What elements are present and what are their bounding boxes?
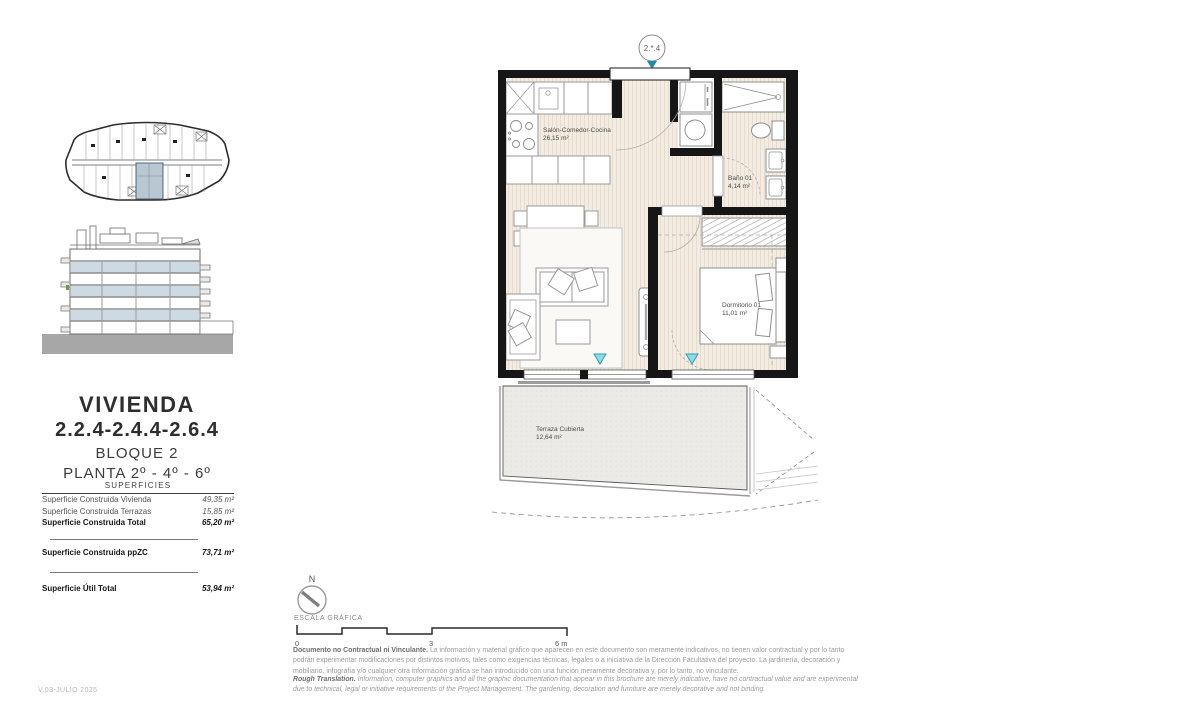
row-value: 15,85 m²: [202, 507, 234, 518]
floor-plan: 2.*.4: [480, 25, 830, 545]
disclaimer-en-body: Information, computer graphics and all t…: [293, 676, 858, 693]
svg-text:2.*.4: 2.*.4: [644, 44, 661, 53]
elevation-green-mark: [66, 285, 69, 290]
disclaimer-en: Rough Translation. Information, computer…: [293, 675, 861, 696]
unit-numbers: 2.2.4-2.4.4-2.6.4: [30, 419, 244, 442]
title-block: VIVIENDA 2.2.4-2.4.4-2.6.4 BLOQUE 2 PLAN…: [30, 392, 244, 482]
table-row: Superficie Construida Terrazas 15,85 m²: [42, 507, 234, 518]
headboard: [776, 272, 786, 342]
table-row-util: Superficie Útil Total 53,94 m²: [42, 584, 234, 595]
row-value: 49,35 m²: [202, 495, 234, 506]
terrace: [500, 386, 754, 496]
entry-door: [610, 68, 690, 80]
coffee-table: [556, 320, 590, 344]
superficies-header: SUPERFICIES: [42, 481, 234, 490]
living-furniture: [506, 228, 622, 368]
floors-label: PLANTA 2º - 4º - 6º: [30, 465, 244, 482]
row-value: 53,94 m²: [202, 584, 234, 595]
windows: [518, 370, 754, 383]
building-elevation: [40, 221, 236, 363]
row-value: 65,20 m²: [202, 518, 234, 529]
disclaimer-es-lead: Documento no Contractual ni Vinculante.: [293, 647, 428, 654]
divider: [42, 493, 234, 494]
superficies-table: SUPERFICIES Superficie Construida Vivien…: [42, 481, 234, 595]
elevation-highlight-bands: [71, 262, 199, 321]
building-key-plan: [58, 110, 234, 216]
disclaimer-es: Documento no Contractual ni Vinculante. …: [293, 646, 861, 677]
elevation-roof: [70, 226, 200, 249]
north-label: N: [309, 574, 316, 584]
bathroom-door: [713, 156, 723, 196]
north-arrow: N: [288, 572, 340, 618]
row-value: 73,71 m²: [202, 548, 234, 559]
row-label: Superficie Construida Total: [42, 518, 146, 529]
shower: [722, 82, 784, 112]
highlighted-unit: [136, 163, 163, 199]
nightstand: [776, 258, 787, 272]
bedroom-door: [662, 206, 702, 216]
elevation-ground: [42, 334, 233, 354]
table-row-ppzc: Superficie Construida ppZC 73,71 m²: [42, 548, 234, 559]
unit-badge: 2.*.4: [639, 35, 665, 69]
table-row-total: Superficie Construida Total 65,20 m²: [42, 518, 234, 529]
page-title: VIVIENDA: [30, 392, 244, 418]
block-label: BLOQUE 2: [30, 445, 244, 462]
row-label: Superficie Construida Terrazas: [42, 507, 151, 518]
scale-label: ESCALA GRÁFICA: [294, 615, 363, 622]
row-label: Superficie Construida ppZC: [42, 548, 148, 559]
table-row: Superficie Construida Vivienda 49,35 m²: [42, 495, 234, 506]
wardrobe: [702, 218, 788, 246]
version-label: V.03-JULIO 2025: [38, 687, 97, 694]
nightstand: [770, 346, 788, 358]
disclaimer-en-lead: Rough Translation.: [293, 676, 356, 683]
north-needle: [302, 592, 319, 606]
row-label: Superficie Útil Total: [42, 584, 117, 595]
row-label: Superficie Construida Vivienda: [42, 495, 151, 506]
